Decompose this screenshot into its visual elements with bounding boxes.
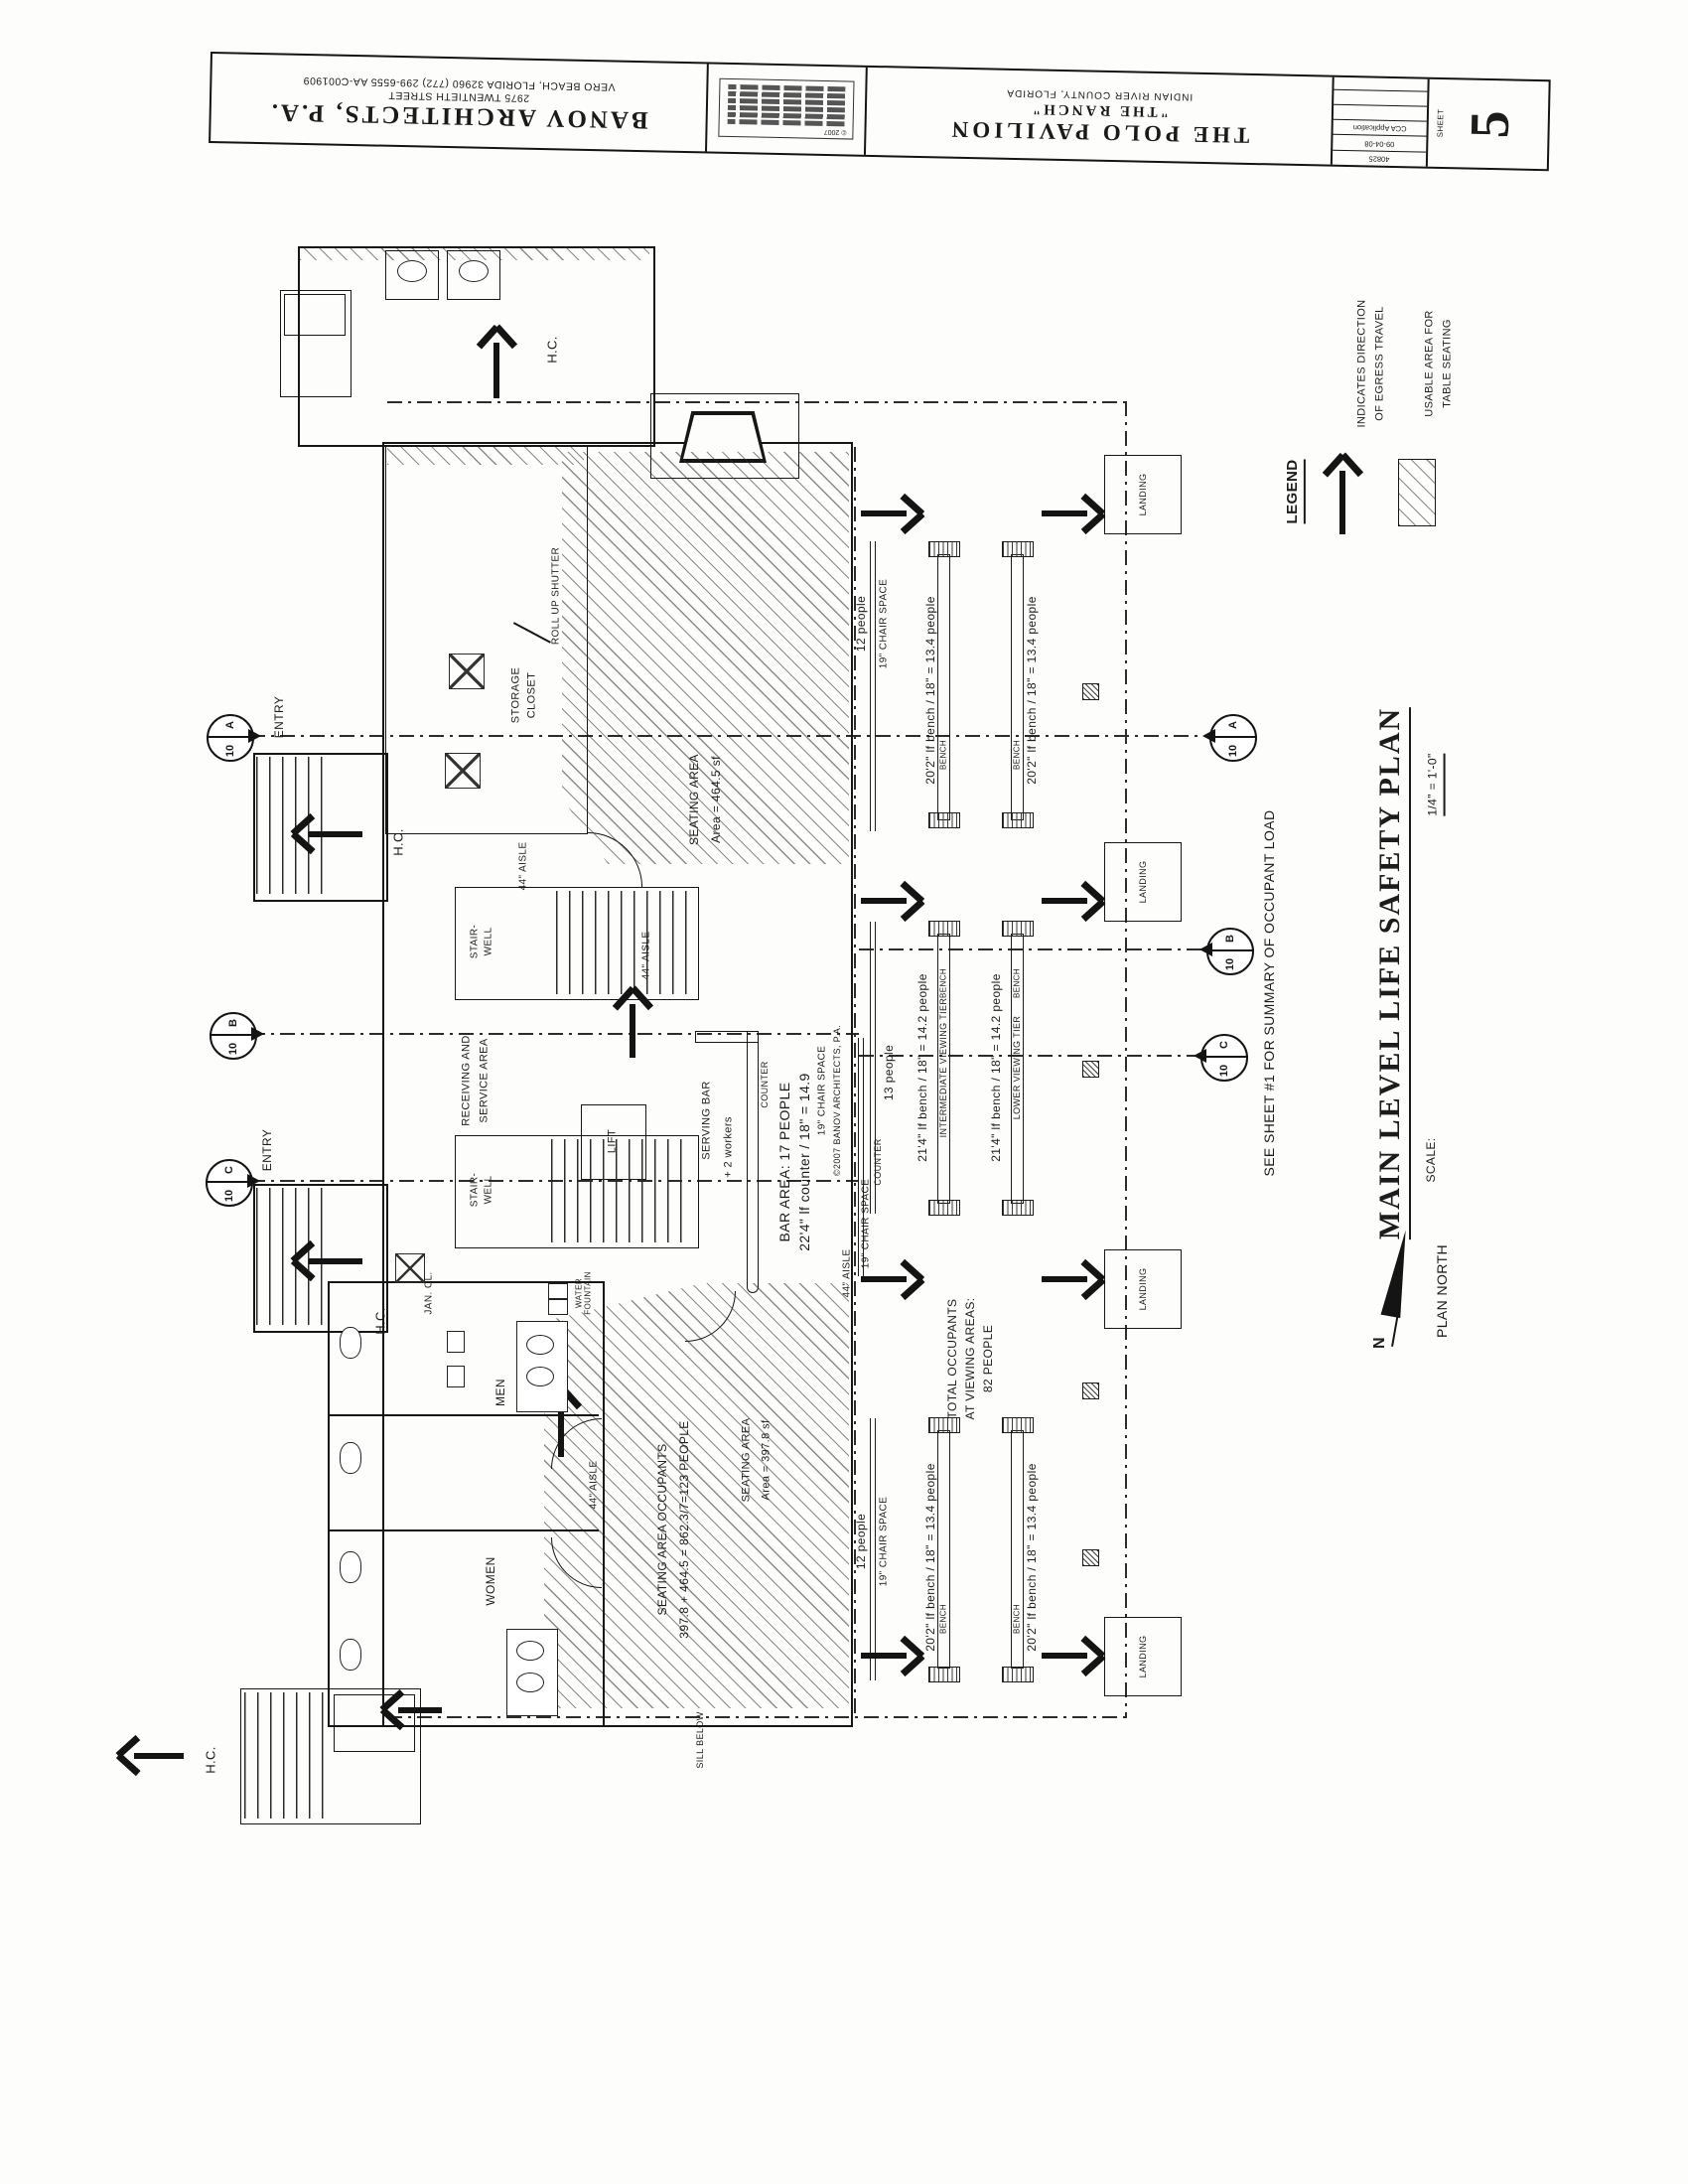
bar-area-label: BAR AREA: 17 PEOPLE	[776, 1083, 792, 1242]
egress-arrow-right	[1042, 1638, 1103, 1674]
water-fountain-label1: WATER	[574, 1278, 583, 1308]
revision-row: CCA Application	[1333, 120, 1426, 137]
revision-row: 09-04-08	[1333, 135, 1426, 152]
bench-label: BENCH	[1012, 968, 1021, 998]
people-count: 13 people	[883, 1045, 897, 1100]
revision-row: 40825	[1333, 150, 1426, 166]
bench-cap	[928, 1417, 960, 1433]
bench-rail	[1011, 554, 1024, 820]
men-label: MEN	[494, 1379, 508, 1406]
section-marker-a: A10	[1209, 714, 1257, 762]
revision-row	[1334, 105, 1427, 122]
section-marker-b-left: B10	[210, 1012, 257, 1060]
section-line-b	[859, 948, 1204, 950]
plan-copyright: ©2007 BANOV ARCHITECTS, P.A.	[832, 1025, 842, 1176]
legend-hatch-sample	[1398, 459, 1436, 526]
bench-calc: 20'2" lf bench / 18" = 13.4 people	[924, 1463, 938, 1652]
egress-arrow-right	[861, 1261, 922, 1297]
project-subname: "THE RANCH"	[1030, 100, 1169, 121]
stairwell-a-label1: STAIR-	[469, 925, 481, 958]
bench-label: BENCH	[1012, 1604, 1021, 1634]
north-arrow-icon	[1381, 1229, 1416, 1318]
water-fountain-label2: FOUNTAIN	[583, 1271, 592, 1315]
section-marker-a-left: A10	[207, 714, 254, 762]
egress-arrow-right	[861, 1638, 922, 1674]
seating-upper-label2: Area = 464.5 sf	[710, 756, 724, 843]
aisle-label: 44" AISLE	[640, 932, 652, 980]
egress-arrow-up	[479, 327, 514, 398]
sill-below-label: SILL BELOW	[695, 1711, 705, 1768]
tier-label: LOWER VIEWING TIER	[1012, 1016, 1022, 1120]
equipment-box	[449, 654, 485, 689]
exterior-stair-treads	[244, 1692, 324, 1819]
column-post	[1082, 1549, 1099, 1566]
equipment-box	[445, 753, 481, 789]
north-letter: N	[1371, 1337, 1389, 1349]
bench-cap	[928, 921, 960, 937]
workers-label: + 2 workers	[723, 1116, 736, 1178]
title-block-copyright-box: © 2007	[707, 65, 868, 155]
water-fountain	[548, 1283, 568, 1299]
landing-label: LANDING	[1138, 861, 1148, 904]
legend-seating-caption2: TABLE SEATING	[1442, 319, 1455, 408]
chair-row	[870, 922, 876, 1214]
fixture-oval	[459, 260, 489, 282]
occupants-label2: 397.8 + 464.5 = 862.3/7=123 PEOPLE	[678, 1420, 692, 1638]
chair-row	[870, 541, 876, 831]
landing: LANDING	[1104, 842, 1182, 922]
water-fountain	[548, 1299, 568, 1315]
total-occupants1: TOTAL OCCUPANTS	[946, 1299, 960, 1419]
chair-space-label: 19" CHAIR SPACE	[878, 579, 890, 669]
north-arrow-tail	[1391, 1313, 1399, 1347]
bench-cap	[1002, 541, 1034, 557]
toilet	[340, 1442, 361, 1474]
stairwell-a-treads	[556, 891, 693, 994]
mop-sink	[395, 1253, 425, 1283]
seating-upper-label1: SEATING AREA	[688, 754, 702, 845]
sink	[526, 1367, 554, 1386]
landing: LANDING	[1104, 455, 1182, 534]
bench-cap	[1002, 1200, 1034, 1216]
bench-calc: 21'4" lf bench / 18" = 14.2 people	[990, 973, 1004, 1162]
bench-label: BENCH	[938, 740, 947, 770]
scale-value: 1/4" = 1'-0"	[1427, 753, 1446, 815]
egress-arrow-up	[615, 988, 650, 1058]
legend-egress-caption2: OF EGRESS TRAVEL	[1374, 306, 1387, 420]
title-block-firm: BANOV ARCHITECTS, P.A. 2975 TWENTIETH ST…	[211, 54, 709, 151]
section-line-c	[859, 1055, 1199, 1057]
egress-arrow-right	[1042, 1261, 1103, 1297]
column-post	[1082, 1383, 1099, 1399]
egress-arrow-right	[1042, 496, 1103, 531]
bench-label: BENCH	[1012, 740, 1021, 770]
restroom-wall	[330, 1414, 599, 1416]
section-number: 10	[1224, 943, 1236, 986]
people-count: 12 people	[855, 596, 869, 652]
seating-lower-label1: SEATING AREA	[741, 1418, 754, 1503]
bench-cap	[1002, 812, 1034, 828]
bench-cap	[928, 812, 960, 828]
hc-label: H.C.	[205, 1746, 219, 1774]
sink	[516, 1673, 544, 1692]
urinal	[447, 1331, 465, 1353]
section-number: 10	[227, 1027, 239, 1071]
sink	[526, 1335, 554, 1355]
total-occupants2: AT VIEWING AREAS:	[964, 1297, 978, 1419]
bench-label: BENCH	[938, 968, 947, 998]
egress-arrow-left	[293, 816, 362, 852]
bench-rail	[937, 554, 950, 820]
stairwell-b-label1: STAIR-	[469, 1173, 481, 1207]
landing: LANDING	[1104, 1249, 1182, 1329]
bench-label: BENCH	[938, 1604, 947, 1634]
sheet-number: 5	[1458, 109, 1522, 139]
bench-cap	[1002, 921, 1034, 937]
landing-label: LANDING	[1138, 474, 1148, 516]
bench-cap	[928, 541, 960, 557]
bench-calc: 20'2" lf bench / 18" = 13.4 people	[924, 596, 938, 785]
bench-cap	[1002, 1667, 1034, 1682]
title-block: BANOV ARCHITECTS, P.A. 2975 TWENTIETH ST…	[209, 52, 1551, 171]
sink	[516, 1641, 544, 1661]
section-number: 10	[224, 729, 236, 773]
boundary-line-right	[1125, 401, 1127, 1718]
toilet	[340, 1551, 361, 1583]
title-block-project: THE POLO PAVILION "THE RANCH" INDIAN RIV…	[866, 68, 1335, 165]
jan-closet-label: JAN. CL.	[423, 1271, 435, 1314]
legend-title: LEGEND	[1284, 460, 1306, 524]
roll-up-shutter-label: ROLL UP SHUTTER	[550, 547, 562, 645]
legend-egress-arrow	[1325, 455, 1360, 534]
sheet-label: SHEET	[1436, 109, 1446, 138]
bench-calc: 20'2" lf bench / 18" = 13.4 people	[1026, 596, 1040, 785]
column-post	[1082, 683, 1099, 700]
bench-calc: 20'2" lf bench / 18" = 13.4 people	[1026, 1463, 1040, 1652]
egress-arrow-right	[861, 496, 922, 531]
firm-name: BANOV ARCHITECTS, P.A.	[268, 98, 648, 132]
receiving-label1: RECEIVING AND	[461, 1035, 474, 1125]
egress-arrow-right	[1042, 883, 1103, 919]
people-count: 12 people	[855, 1514, 869, 1569]
stairwell-b-treads	[551, 1139, 693, 1242]
column-post	[1082, 1061, 1099, 1078]
storage-closet-label2: CLOSET	[526, 672, 539, 718]
egress-arrow-left	[118, 1738, 184, 1774]
urinal	[447, 1366, 465, 1387]
legend-egress-caption1: INDICATES DIRECTION	[1356, 299, 1369, 427]
entry2-label: ENTRY	[261, 1129, 275, 1171]
landing: LANDING	[1104, 1617, 1182, 1696]
entry1-label: ENTRY	[273, 696, 287, 738]
tier-label: INTERMEDIATE VIEWING TIER	[938, 998, 948, 1138]
plan-title: MAIN LEVEL LIFE SAFETY PLAN	[1373, 707, 1411, 1239]
occupants-label1: SEATING AREA OCCUPANTS	[656, 1443, 670, 1615]
scale-label: SCALE:	[1425, 1137, 1439, 1182]
section-number: 10	[1218, 1049, 1230, 1092]
restroom-wall	[330, 1529, 599, 1531]
section-number: 10	[223, 1174, 235, 1218]
landing-label: LANDING	[1138, 1636, 1148, 1678]
egress-arrow-right	[861, 883, 922, 919]
seating-area-upper-hatch	[562, 452, 849, 864]
plan-north-label: PLAN NORTH	[1434, 1244, 1450, 1338]
women-label: WOMEN	[485, 1556, 498, 1605]
bar-area-calc: 22'4" lf counter / 18" = 14.9	[796, 1073, 812, 1251]
storage-wall-hatch	[387, 447, 584, 465]
storage-closet-label1: STORAGE	[510, 667, 523, 723]
counter-label: COUNTER	[760, 1061, 770, 1107]
title-block-revisions: 40825 09-04-08 CCA Application	[1333, 77, 1430, 167]
stairwell-b-label2: WELL	[483, 1176, 494, 1205]
copyright-note: © 2007	[721, 126, 850, 136]
aisle-label: 44" AISLE	[517, 842, 529, 891]
drawing-sheet: BANOV ARCHITECTS, P.A. 2975 TWENTIETH ST…	[0, 0, 1688, 2184]
bench-calc: 21'4" lf bench / 18" = 14.2 people	[916, 973, 930, 1162]
receiving-label2: SERVICE AREA	[479, 1038, 492, 1122]
title-block-sheet: SHEET 5	[1428, 79, 1549, 169]
project-name: THE POLO PAVILION	[947, 116, 1249, 146]
see-sheet-note: SEE SHEET #1 FOR SUMMARY OF OCCUPANT LOA…	[1261, 809, 1277, 1176]
chair-row	[858, 1038, 864, 1276]
bar-counter	[747, 1031, 759, 1293]
revision-row	[1334, 74, 1427, 91]
chair-space-label: 19" CHAIR SPACE	[878, 1497, 890, 1587]
revision-row	[1334, 89, 1427, 106]
serving-bar-label: SERVING BAR	[701, 1081, 714, 1159]
total-occupants3: 82 PEOPLE	[982, 1325, 996, 1392]
egress-arrow-left	[293, 1243, 362, 1279]
seating-lower-label2: Area = 397.8 sf	[761, 1420, 774, 1501]
chair-space-label: 19" CHAIR SPACE	[816, 1046, 828, 1136]
copyright-text-lines	[728, 119, 845, 126]
section-number: 10	[1227, 729, 1239, 773]
bench-cap	[1002, 1417, 1034, 1433]
section-marker-c-left: C10	[206, 1159, 253, 1207]
hc-label: H.C.	[546, 336, 561, 364]
toilet	[340, 1639, 361, 1671]
bench-cap	[928, 1200, 960, 1216]
hc-label: H.C.	[392, 828, 407, 856]
landing-label: LANDING	[1138, 1268, 1148, 1311]
egress-arrow-left	[382, 1692, 442, 1728]
toilet	[340, 1327, 361, 1359]
bench-cap	[928, 1667, 960, 1682]
fixture-oval	[397, 260, 427, 282]
section-marker-c: C10	[1200, 1034, 1248, 1082]
stairwell-a-label2: WELL	[483, 928, 494, 956]
outbuilding-top-inner	[284, 294, 346, 336]
legend-seating-caption1: USABLE AREA FOR	[1424, 310, 1437, 416]
section-marker-b: B10	[1206, 928, 1254, 975]
